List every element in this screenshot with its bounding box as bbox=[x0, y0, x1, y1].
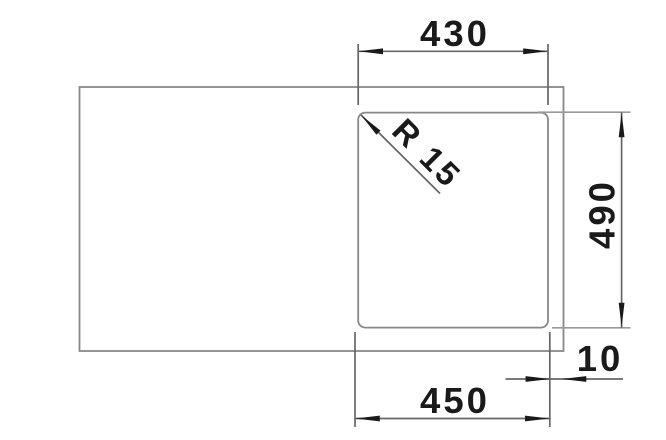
svg-text:490: 490 bbox=[582, 179, 623, 249]
svg-text:430: 430 bbox=[420, 13, 490, 54]
svg-text:450: 450 bbox=[420, 380, 490, 421]
svg-text:R 15: R 15 bbox=[385, 111, 469, 195]
svg-text:10: 10 bbox=[577, 338, 624, 379]
